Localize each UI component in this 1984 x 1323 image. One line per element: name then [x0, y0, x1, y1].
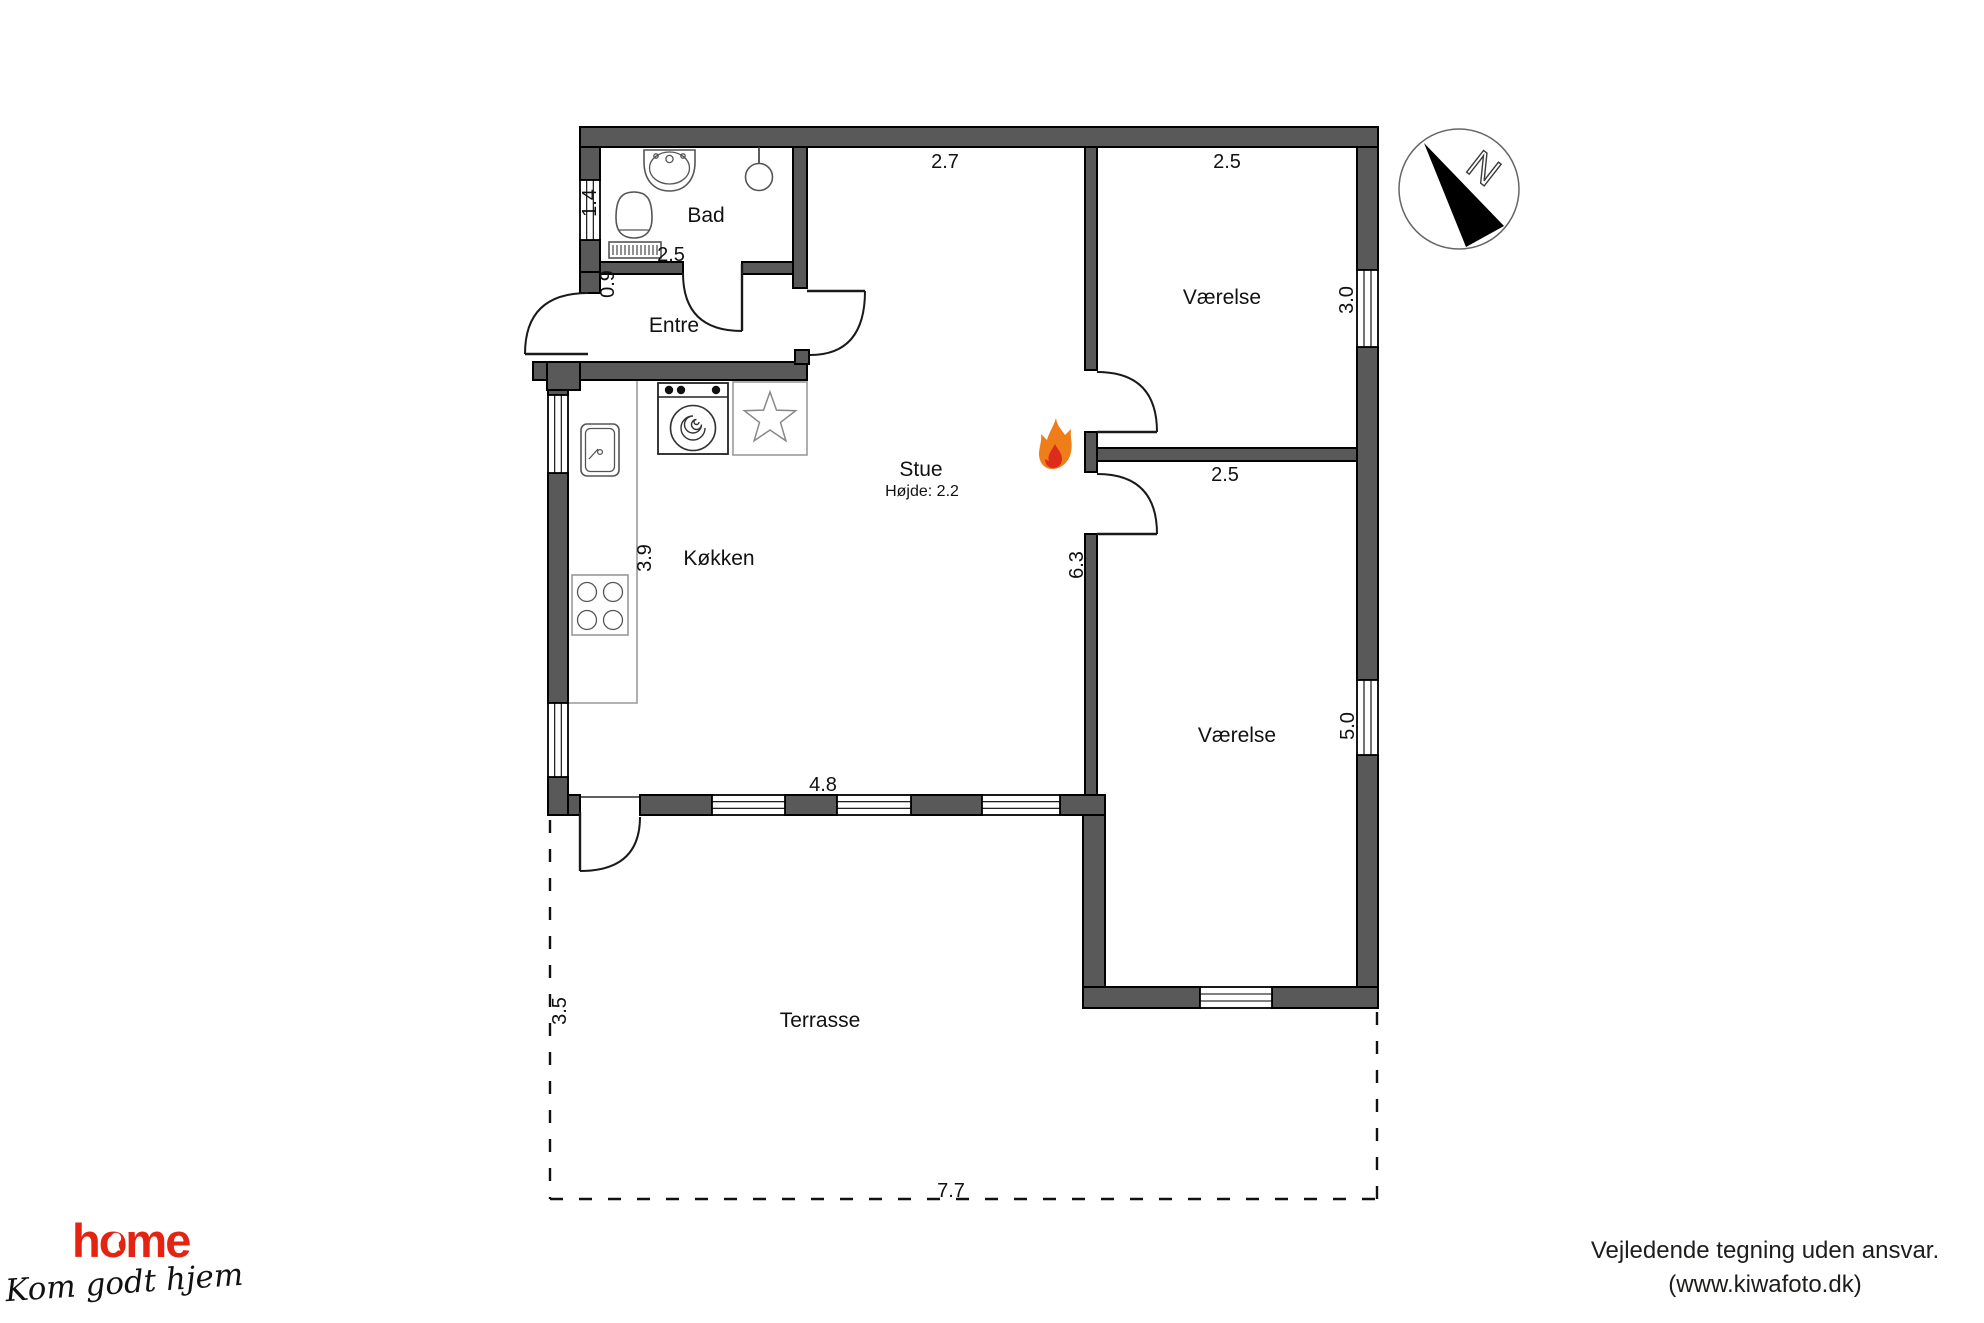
stove-icon: [572, 575, 628, 635]
room-label-kokken: Køkken: [683, 547, 754, 570]
home-logo-text: home: [72, 1214, 190, 1267]
window-bedroom2-right: [1357, 680, 1378, 755]
door-terrace: [580, 797, 640, 871]
dim-stue-width: 2.7: [931, 151, 959, 173]
doors: [525, 264, 1157, 871]
disclaimer: Vejledende tegning uden ansvar. (www.kiw…: [1591, 1237, 1939, 1298]
window-kitchen-left-1: [548, 395, 568, 473]
home-logo: home Kom godt hjem: [3, 1214, 244, 1309]
door-entre-stue: [807, 291, 865, 355]
disclaimer-line2: (www.kiwafoto.dk): [1668, 1271, 1861, 1298]
door-bedroom2: [1097, 474, 1157, 534]
window-south-3: [982, 795, 1060, 815]
floor-plan-page: N Bad Entre Køkken Stue Højde: 2.2 Værel…: [0, 0, 1984, 1323]
dim-bad-window: 1.4: [579, 189, 601, 217]
dim-terrasse-depth: 3.5: [549, 997, 571, 1025]
dim-stue-depth: 6.3: [1066, 551, 1088, 579]
fixtures: [569, 147, 1072, 703]
disclaimer-line1: Vejledende tegning uden ansvar.: [1591, 1237, 1939, 1264]
washing-machine-icon: [658, 383, 728, 454]
room-label-stue-height: Højde: 2.2: [885, 483, 959, 500]
radiator-icon: [609, 242, 661, 258]
floor-plan-canvas: N Bad Entre Køkken Stue Højde: 2.2 Værel…: [0, 0, 1984, 1323]
ceiling-lamp-icon: [746, 147, 773, 191]
window-kitchen-left-2: [548, 703, 568, 777]
window-south-2: [837, 795, 911, 815]
dishwasher-star-icon: [733, 382, 807, 455]
dim-kokken-width: 4.8: [809, 774, 837, 796]
room-label-vaerelse-top: Værelse: [1183, 286, 1261, 309]
room-label-bad: Bad: [687, 204, 724, 227]
window-bedroom1-right: [1357, 270, 1378, 347]
dim-vaerelse-bottom-depth: 5.0: [1337, 712, 1359, 740]
room-label-entre: Entre: [649, 314, 699, 337]
bathroom-sink-icon: [644, 150, 695, 191]
fireplace-icon: [1039, 418, 1072, 469]
door-front-entry: [525, 293, 588, 354]
dim-vaerelse-top-depth: 3.0: [1336, 286, 1358, 314]
dim-bad-width: 2.5: [657, 244, 685, 266]
toilet-icon: [616, 192, 652, 238]
dim-kokken-depth: 3.9: [634, 544, 656, 572]
kitchen-sink-icon: [581, 424, 619, 476]
dim-vaerelse-top-width: 2.5: [1213, 151, 1241, 173]
compass-north-icon: N: [1399, 129, 1519, 249]
door-bedroom1: [1097, 372, 1157, 432]
room-label-terrasse: Terrasse: [780, 1009, 861, 1032]
dim-terrasse-width: 7.7: [937, 1180, 965, 1202]
room-label-stue: Stue: [899, 458, 942, 481]
dim-entre-door: 0.9: [597, 270, 619, 298]
window-bedroom2-bottom: [1200, 987, 1272, 1008]
dim-vaerelse-bottom-width: 2.5: [1211, 464, 1239, 486]
window-south-1: [712, 795, 785, 815]
terrace-dashed-outline: [550, 820, 1377, 1199]
room-label-vaerelse-bottom: Værelse: [1198, 724, 1276, 747]
home-logo-tagline: Kom godt hjem: [3, 1257, 244, 1310]
